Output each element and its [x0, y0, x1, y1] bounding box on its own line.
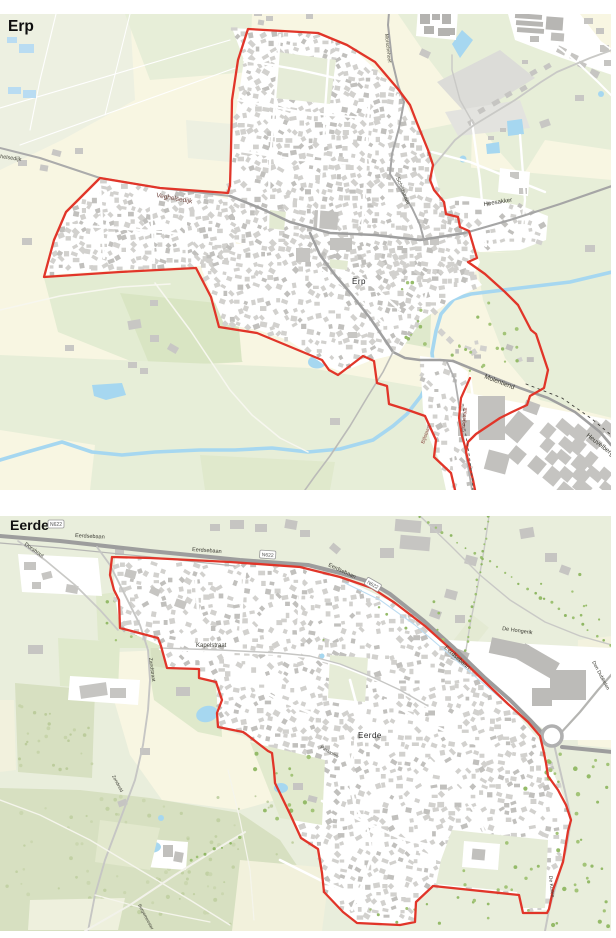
svg-text:Erp: Erp	[352, 277, 366, 286]
svg-text:Erp: Erp	[8, 18, 34, 35]
svg-text:N622: N622	[50, 522, 62, 528]
svg-text:Eerde: Eerde	[358, 731, 382, 740]
svg-text:Kapelstraat: Kapelstraat	[196, 643, 227, 649]
svg-text:Eerde: Eerde	[10, 517, 49, 533]
svg-text:N622: N622	[261, 552, 274, 559]
